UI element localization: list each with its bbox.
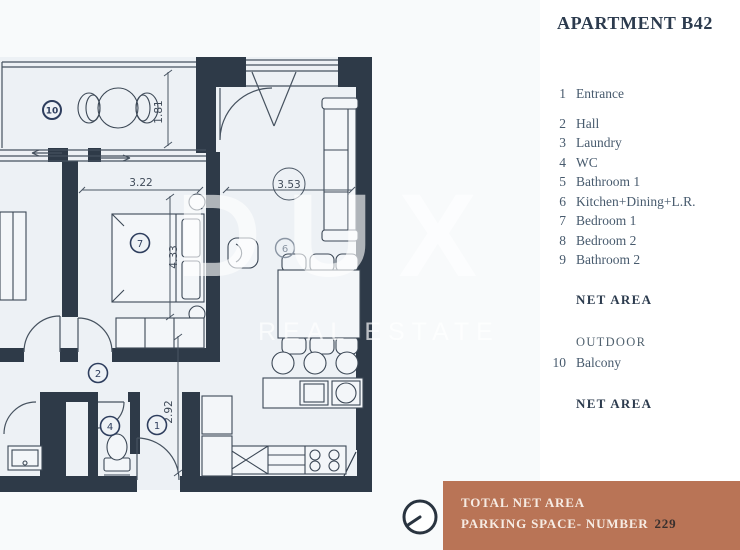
legend-item-label: Bedroom 2: [576, 231, 636, 251]
svg-text:10: 10: [46, 107, 59, 117]
dim-balcony-height: 1.81: [153, 100, 165, 123]
parking-space-label: PARKING SPACE- NUMBER: [461, 516, 648, 531]
legend-item-label: WC: [576, 153, 598, 173]
armchair: [228, 238, 258, 268]
legend-item-number: 7: [549, 211, 566, 231]
legend-item-number: 1: [549, 84, 566, 104]
kitchen-island: [263, 378, 363, 408]
kitchen-counter: [224, 446, 346, 474]
legend-item-label: Bathroom 2: [576, 250, 640, 270]
svg-text:6: 6: [282, 244, 288, 255]
legend-item: 8 Bedroom 2: [549, 231, 737, 251]
marker-bedroom1: 7: [131, 234, 150, 253]
legend-item-label: Balcony: [576, 353, 621, 373]
legend-item: 5 Bathroom 1: [549, 172, 737, 192]
legend-item: 4 WC: [549, 153, 737, 173]
legend-item-label: Hall: [576, 114, 599, 134]
dim-bedroom-height: 4.33: [168, 245, 180, 268]
svg-text:1: 1: [154, 421, 160, 432]
vanity-sink: [8, 446, 42, 470]
sofa: [322, 98, 358, 241]
legend-item-label: Entrance: [576, 84, 624, 104]
legend-item-number: 8: [549, 231, 566, 251]
dining-table: [278, 254, 360, 354]
legend-item: 6 Kitchen+Dining+L.R.: [549, 192, 737, 212]
parking-space-line: PARKING SPACE- NUMBER229: [461, 516, 740, 532]
svg-text:7: 7: [137, 239, 143, 250]
legend-item: 3 Laundry: [549, 133, 737, 153]
legend-item: 10 Balcony: [549, 353, 737, 373]
legend-item-label: Kitchen+Dining+L.R.: [576, 192, 695, 212]
page: 1.81 3.22 3.53 4.33 2.92 10 7 6 2: [0, 0, 740, 550]
dim-bedroom-width: 3.22: [129, 177, 152, 189]
marker-hall: 2: [89, 364, 108, 383]
svg-text:2: 2: [95, 369, 101, 380]
legend-item-number: 3: [549, 133, 566, 153]
svg-text:4: 4: [107, 422, 113, 433]
legend-item-label: Laundry: [576, 133, 622, 153]
floor-plan: 1.81 3.22 3.53 4.33 2.92 10 7 6 2: [0, 0, 540, 550]
marker-wc: 4: [101, 417, 120, 436]
legend-item: 9 Bathroom 2: [549, 250, 737, 270]
clock-icon: [398, 495, 442, 539]
marker-entrance: 1: [148, 416, 167, 435]
summary-bar: TOTAL NET AREA PARKING SPACE- NUMBER229: [443, 481, 740, 550]
legend-item-number: 5: [549, 172, 566, 192]
net-area-label: NET AREA: [576, 292, 737, 308]
legend-item-number: 6: [549, 192, 566, 212]
room-legend: 1 Entrance 2 Hall 3 Laundry 4 WC 5 Bathr…: [549, 84, 737, 412]
dim-living-width: 3.53: [277, 179, 300, 191]
legend-item: 7 Bedroom 1: [549, 211, 737, 231]
legend-item: 2 Hall: [549, 114, 737, 134]
legend-item-label: Bedroom 1: [576, 211, 636, 231]
legend-item-number: 10: [549, 353, 566, 373]
page-title: APARTMENT B42: [557, 13, 713, 34]
outdoor-label: OUTDOOR: [576, 335, 737, 350]
fridge-cabinet: [202, 396, 232, 476]
net-area-label: NET AREA: [576, 396, 737, 412]
total-net-area-label: TOTAL NET AREA: [461, 495, 740, 511]
legend-item: 1 Entrance: [549, 84, 737, 104]
marker-balcony: 10: [43, 101, 61, 119]
bar-stools: [272, 352, 358, 374]
legend-item-label: Bathroom 1: [576, 172, 640, 192]
legend-item-number: 9: [549, 250, 566, 270]
legend-item-number: 2: [549, 114, 566, 134]
legend-item-number: 4: [549, 153, 566, 173]
parking-space-number: 229: [654, 516, 676, 531]
